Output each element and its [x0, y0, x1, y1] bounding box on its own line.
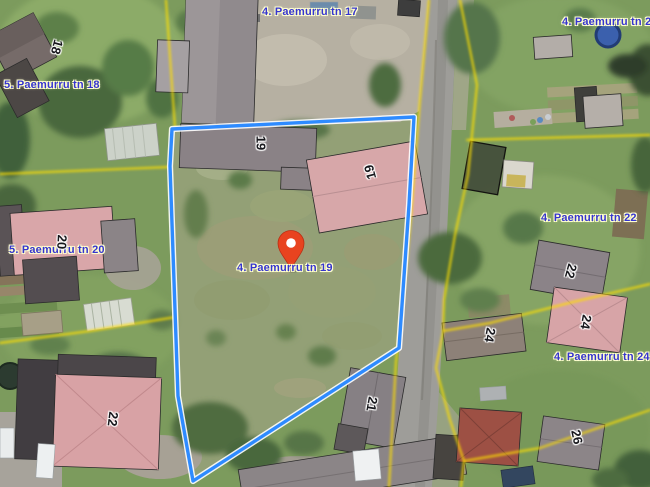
address-label-4-paemurru-tn-24: 4. Paemurru tn 24	[554, 351, 650, 363]
car-gray	[480, 386, 507, 401]
map-canvas[interactable]: 5. Paemurru tn 18 4. Paemurru tn 17 4. P…	[0, 0, 650, 487]
building-number: 19	[254, 136, 269, 150]
address-label-5-paemurru-tn-18: 5. Paemurru tn 18	[4, 79, 100, 91]
car-dark	[397, 0, 420, 17]
outbuilding	[23, 256, 80, 304]
building-number: 21	[363, 396, 380, 413]
building-number: 22	[105, 411, 122, 427]
address-label-4-paemurru-tn-22: 4. Paemurru tn 22	[541, 212, 637, 224]
building-number: 24	[577, 314, 594, 331]
address-label-4-paemurru-tn-19: 4. Paemurru tn 19	[237, 262, 333, 274]
van-white	[353, 449, 382, 481]
building-22-left	[14, 353, 162, 470]
address-label-4-paemurru-tn-20: 4. Paemurru tn 20	[562, 16, 650, 28]
greenhouse	[104, 123, 159, 160]
address-label-4-paemurru-tn-17: 4. Paemurru tn 17	[262, 6, 358, 18]
building-number: 24	[481, 327, 498, 344]
car-white	[36, 443, 55, 478]
building-number: 26	[568, 428, 586, 445]
greenhouse	[21, 310, 63, 335]
shed	[502, 160, 534, 189]
car-white	[0, 428, 14, 458]
shed	[533, 35, 572, 60]
building-number: 20	[54, 234, 70, 249]
